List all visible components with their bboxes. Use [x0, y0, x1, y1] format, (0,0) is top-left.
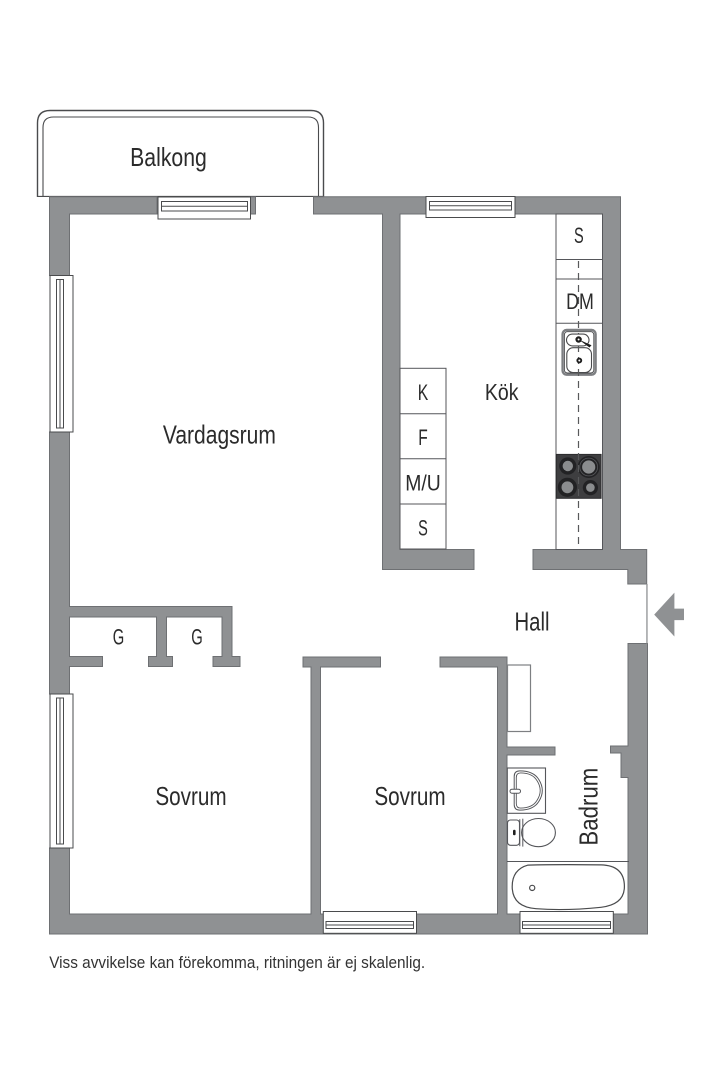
svg-text:Kök: Kök: [485, 379, 519, 405]
svg-text:G: G: [113, 625, 125, 650]
svg-text:M/U: M/U: [405, 470, 441, 495]
svg-text:K: K: [418, 380, 429, 405]
svg-text:Viss avvikelse kan förekomma,: Viss avvikelse kan förekomma, ritningen …: [49, 954, 425, 972]
svg-text:Vardagsrum: Vardagsrum: [163, 419, 276, 449]
svg-text:S: S: [418, 516, 428, 541]
svg-text:Sovrum: Sovrum: [374, 781, 445, 811]
svg-text:DM: DM: [566, 289, 594, 314]
svg-text:Balkong: Balkong: [130, 142, 207, 172]
svg-text:Badrum: Badrum: [574, 768, 604, 846]
svg-text:Sovrum: Sovrum: [155, 781, 226, 811]
svg-text:S: S: [574, 223, 584, 248]
svg-text:F: F: [418, 425, 428, 450]
svg-text:Hall: Hall: [515, 607, 550, 637]
svg-text:G: G: [191, 625, 203, 650]
